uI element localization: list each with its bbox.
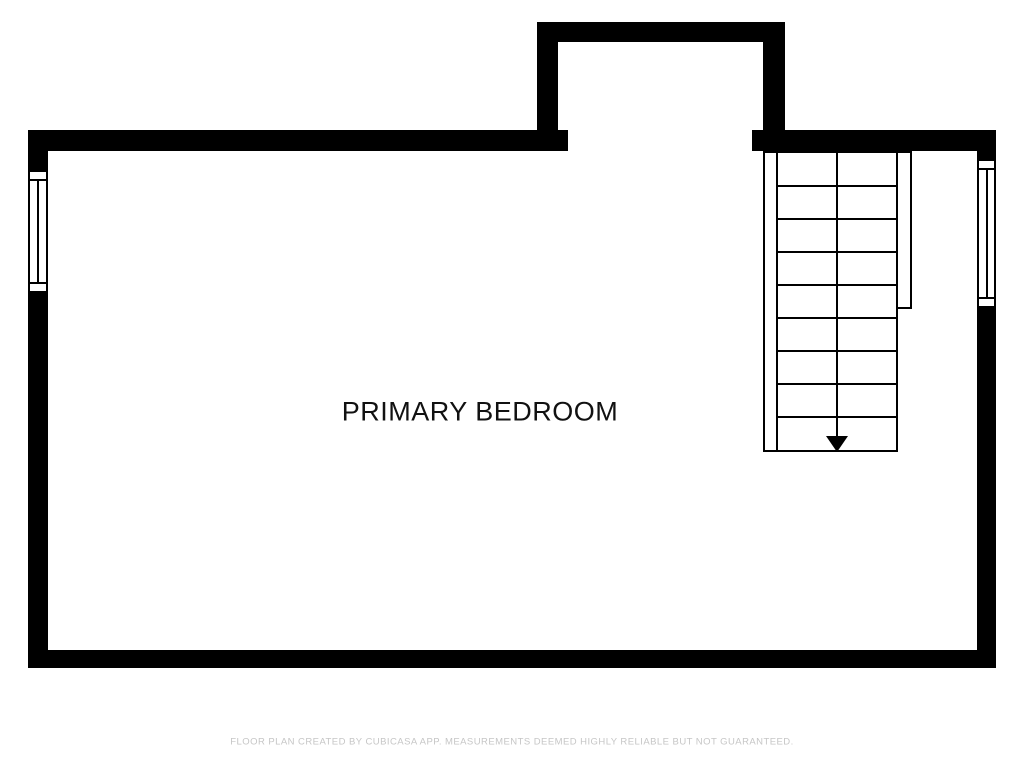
- left-wall-window: [28, 170, 48, 293]
- window-glass-line: [986, 170, 988, 297]
- wall-bottom: [28, 650, 996, 668]
- bumpout-right-wall: [763, 22, 785, 151]
- bumpout-left-wall: [537, 22, 558, 151]
- window-frame-line: [979, 297, 994, 299]
- floor-plan-page: PRIMARY BEDROOM FLOOR PLAN CREATED BY CU…: [0, 0, 1024, 768]
- staircase-right-rail: [896, 151, 912, 309]
- staircase-direction-line: [836, 151, 838, 439]
- right-wall-window: [977, 159, 996, 308]
- wall-top-left-segment: [28, 130, 568, 151]
- room-label: PRIMARY BEDROOM: [342, 397, 619, 428]
- wall-right-upper: [977, 130, 996, 160]
- footer-disclaimer: FLOOR PLAN CREATED BY CUBICASA APP. MEAS…: [230, 737, 793, 748]
- wall-top-right-segment: [752, 130, 996, 151]
- wall-left-lower: [28, 292, 48, 668]
- window-glass-line: [37, 181, 39, 282]
- bumpout-top-wall: [537, 22, 785, 42]
- window-frame-line: [30, 282, 46, 284]
- wall-left-upper: [28, 130, 48, 171]
- stairs-down-arrow-icon: [826, 436, 848, 452]
- wall-right-lower: [977, 307, 996, 668]
